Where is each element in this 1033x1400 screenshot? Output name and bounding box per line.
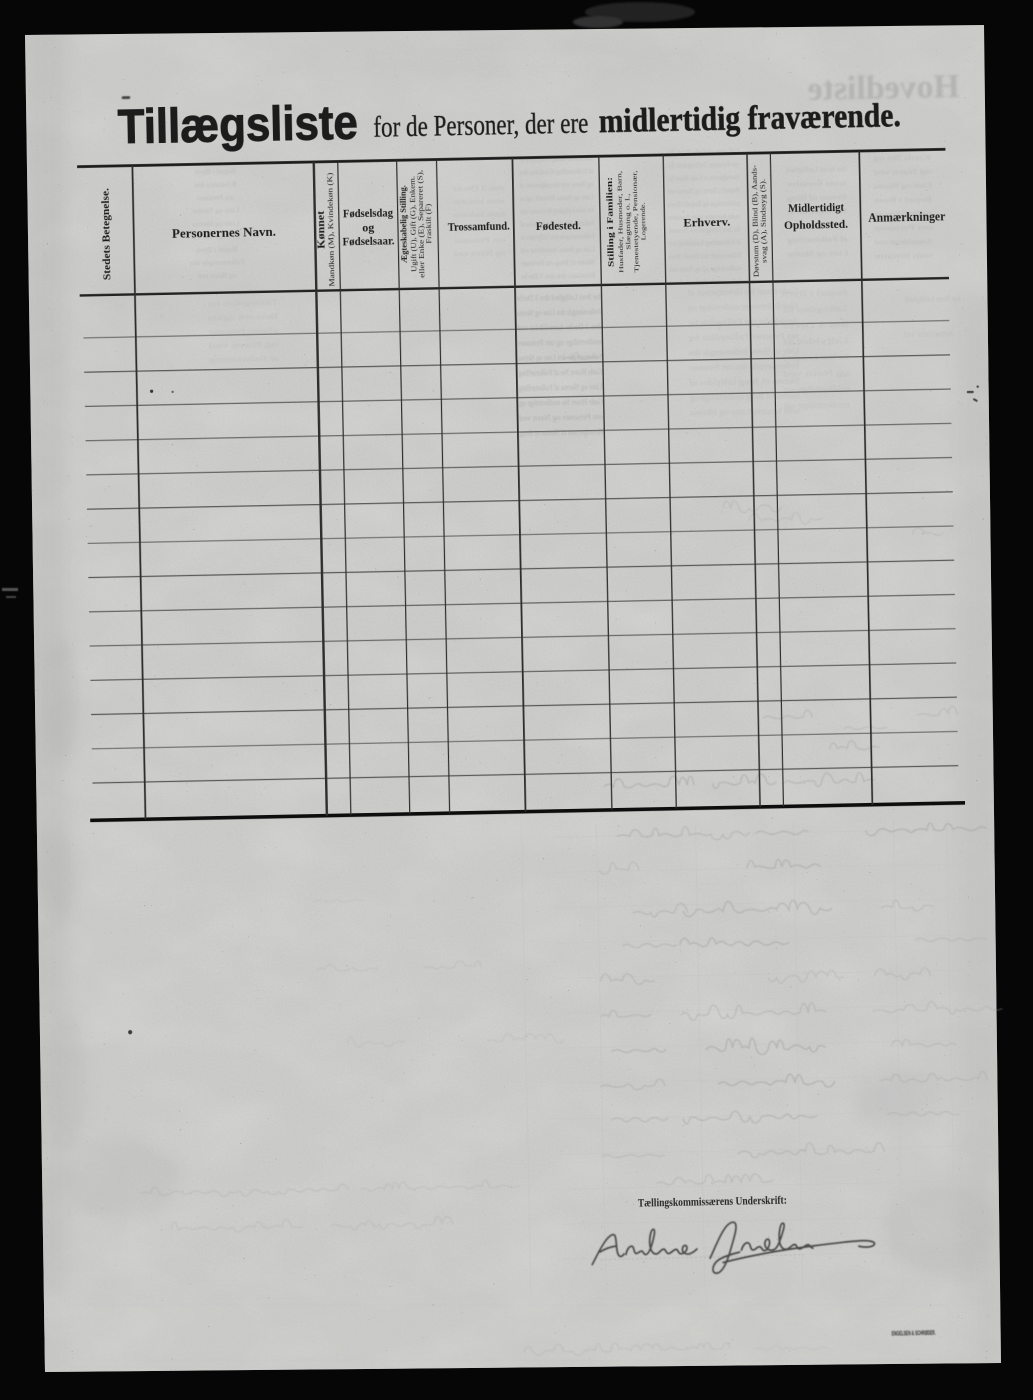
svg-text:og Navn ved: og Navn ved bbox=[783, 368, 849, 378]
svg-text:for hver Leilighed Kristiania: for hver Leilighed Kristiania den bbox=[520, 205, 594, 215]
svg-text:Liste og Skema: Liste og Skema bbox=[787, 248, 848, 258]
svg-text:midlertidige og Bopæl i Byen: midlertidige og Bopæl i Byen bbox=[668, 198, 740, 208]
svg-text:Ægteskabelig Stilling.: Ægteskabelig Stilling. bbox=[397, 185, 409, 263]
svg-text:af Folketælling Anmeldelse ved: af Folketælling Anmeldelse ved bbox=[668, 237, 740, 247]
svg-text:Fraskilt (F): Fraskilt (F) bbox=[426, 204, 434, 244]
svg-text:om Personer: om Personer bbox=[196, 193, 234, 203]
svg-text:for hver Leilighed den 3 Decbr: for hver Leilighed den 3 Decbr bbox=[516, 292, 600, 303]
svg-text:ENGELSEN & SCHRØDER.: ENGELSEN & SCHRØDER. bbox=[892, 1330, 936, 1338]
svg-text:Tællingskommissærens Underskr: Tællingskommissærens Underskrift: bbox=[638, 1193, 787, 1210]
svg-text:og Navn ved: og Navn ved bbox=[208, 340, 279, 350]
svg-text:Fødselsaar.: Fødselsaar. bbox=[342, 233, 394, 248]
svg-text:Liste og Skema: Liste og Skema bbox=[192, 205, 240, 215]
svg-text:Kreds No og: Kreds No og bbox=[873, 153, 932, 163]
svg-text:Liste og Skema af Folketælling: Liste og Skema af Folketælling bbox=[519, 382, 603, 393]
svg-text:om Personer og Navn ved: om Personer og Navn ved bbox=[519, 412, 603, 423]
svg-text:Midlertidigt: Midlertidigt bbox=[788, 200, 844, 215]
svg-text:Hovedperson af Skema til Brug: Hovedperson af Skema til Brug bbox=[519, 427, 603, 438]
svg-text:Bopæl i Byen: Bopæl i Byen bbox=[873, 195, 932, 205]
svg-text:for de Personer, der ere: for de Personer, der ere bbox=[373, 107, 589, 144]
svg-text:Bopæl i Byen: Bopæl i Byen bbox=[196, 245, 238, 255]
svg-text:som bosatte: som bosatte bbox=[452, 209, 505, 219]
svg-text:Bopæl i Byen: Bopæl i Byen bbox=[782, 288, 848, 298]
svg-text:Udfyldes af: Udfyldes af bbox=[782, 336, 849, 346]
svg-text:Anmeldelse ved: Anmeldelse ved bbox=[874, 237, 932, 247]
svg-text:Folkemængde den: Folkemængde den bbox=[189, 257, 245, 267]
svg-text:Trossamfund.: Trossamfund. bbox=[448, 219, 510, 234]
svg-text:Folkemængde den Liste og Skema: Folkemængde den Liste og Skema bbox=[517, 307, 602, 318]
svg-text:Tællingsliste for: Tællingsliste for bbox=[207, 298, 278, 308]
svg-text:Stilling i Familien:: Stilling i Familien: bbox=[605, 177, 616, 267]
svg-text:Bemærk ogsaa: Bemærk ogsaa bbox=[207, 312, 278, 322]
svg-text:midlertidige og og Navn ved: midlertidige og og Navn ved bbox=[669, 263, 741, 273]
svg-text:Hovedperson af Gade Huset No: Hovedperson af Gade Huset No bbox=[667, 172, 739, 182]
svg-text:Fødselsdag: Fødselsdag bbox=[343, 205, 393, 220]
svg-text:og Navn ved Hovedperson af: og Navn ved Hovedperson af bbox=[519, 179, 594, 189]
svg-text:Gade Huset No midlertidige og: Gade Huset No midlertidige og bbox=[519, 397, 603, 408]
svg-text:Fødested.: Fødested. bbox=[536, 218, 581, 233]
svg-text:den 3 Decbr: den 3 Decbr bbox=[782, 320, 849, 330]
svg-text:som bosatte: som bosatte bbox=[874, 251, 933, 261]
svg-text:af Folketælling: af Folketælling bbox=[787, 234, 847, 244]
svg-text:Tællingsliste for: Tællingsliste for bbox=[782, 304, 849, 314]
svg-text:Stedets Betegnelse.: Stedets Betegnelse. bbox=[100, 188, 114, 280]
svg-text:og Navn ved: og Navn ved bbox=[453, 248, 506, 258]
svg-text:Liste og Skema Bemærk ogsaa: Liste og Skema Bemærk ogsaa bbox=[519, 192, 594, 202]
svg-text:Folkemængde den Udfyldes af: Folkemængde den Udfyldes af bbox=[520, 231, 595, 241]
svg-text:af Folketælling Kristiania den: af Folketælling Kristiania den bbox=[519, 166, 593, 176]
svg-text:Kristiania den: Kristiania den bbox=[194, 180, 237, 190]
svg-text:Personernes Navn.: Personernes Navn. bbox=[172, 224, 276, 241]
svg-text:Tillægsliste: Tillægsliste bbox=[117, 97, 358, 155]
svg-text:Gade Huset No af Folketælling: Gade Huset No af Folketælling bbox=[518, 367, 602, 378]
svg-text:Bopæl i Byen og Navn ved: Bopæl i Byen og Navn ved bbox=[667, 185, 739, 195]
svg-text:Opholdssted.: Opholdssted. bbox=[784, 217, 848, 232]
svg-text:og: og bbox=[362, 220, 374, 234]
svg-text:midlertidige og om Personer: midlertidige og om Personer bbox=[517, 337, 601, 348]
svg-text:Anmeldelse ved: Anmeldelse ved bbox=[904, 329, 954, 339]
svg-text:Kristiania den den 3 Decbr: Kristiania den den 3 Decbr bbox=[521, 270, 596, 280]
svg-text:midlertidig fraværende.: midlertidig fraværende. bbox=[598, 97, 901, 140]
svg-text:midlertidige og: midlertidige og bbox=[784, 384, 850, 394]
svg-text:den 3 Decbr: den 3 Decbr bbox=[452, 183, 505, 193]
svg-text:som bosatte: som bosatte bbox=[452, 196, 505, 206]
svg-text:og Navn ved: og Navn ved bbox=[873, 167, 932, 177]
svg-text:om Personer Tællingsliste for: om Personer Tællingsliste for bbox=[667, 159, 740, 169]
svg-text:som bosatte: som bosatte bbox=[785, 178, 846, 188]
svg-text:midlertidige og: midlertidige og bbox=[784, 400, 850, 410]
svg-text:Skema til Brug om Personer: Skema til Brug om Personer bbox=[521, 257, 596, 267]
svg-text:Logerende.: Logerende. bbox=[640, 202, 648, 241]
svg-text:Liste og Skema Anmeldelse ved: Liste og Skema Anmeldelse ved bbox=[521, 244, 595, 254]
svg-text:Bopæl i Byen: Bopæl i Byen bbox=[194, 167, 236, 177]
svg-text:for hver Leilighed: for hver Leilighed bbox=[905, 294, 960, 304]
svg-text:for hver Leilighed: for hver Leilighed bbox=[786, 164, 846, 174]
svg-text:om Personer: om Personer bbox=[453, 235, 506, 245]
svg-text:Folkemængde den Bopæl i Byen: Folkemængde den Bopæl i Byen bbox=[669, 250, 741, 260]
svg-text:Anmærkninger: Anmærkninger bbox=[868, 209, 946, 225]
svg-text:og Navn ved: og Navn ved bbox=[198, 271, 237, 281]
svg-text:af Folketælling: af Folketælling bbox=[209, 354, 280, 364]
svg-text:Erhverv.: Erhverv. bbox=[683, 215, 730, 230]
svg-text:Liste og Skema: Liste og Skema bbox=[873, 181, 932, 191]
